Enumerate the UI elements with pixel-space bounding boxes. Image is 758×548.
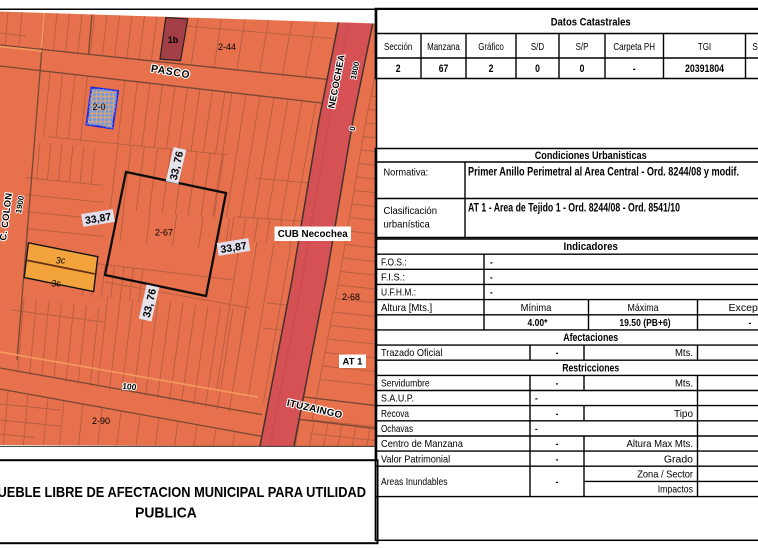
svg-text:-: - xyxy=(535,393,538,405)
svg-text:S/P: S/P xyxy=(576,42,589,53)
svg-text:Carpeta PH: Carpeta PH xyxy=(613,42,655,53)
svg-text:Gráfico: Gráfico xyxy=(478,42,504,53)
svg-text:2-67: 2-67 xyxy=(155,228,173,238)
svg-text:Areas Inundables: Areas Inundables xyxy=(381,476,448,488)
svg-text:Primer Anillo Perimetral al Ar: Primer Anillo Perimetral al Area Central… xyxy=(468,165,739,179)
svg-text:Valor Patrimonial: Valor Patrimonial xyxy=(381,453,450,465)
svg-text:Condiciones Urbanisticas: Condiciones Urbanisticas xyxy=(535,150,647,162)
svg-text:Afectaciones: Afectaciones xyxy=(563,332,618,344)
svg-text:2-44: 2-44 xyxy=(218,42,236,52)
svg-text:F.O.S.:: F.O.S.: xyxy=(381,256,407,268)
svg-text:20391804: 20391804 xyxy=(685,63,725,75)
svg-text:1b: 1b xyxy=(168,35,179,45)
svg-text:PUBLICA: PUBLICA xyxy=(135,505,197,522)
svg-text:Excepcional: Excepcional xyxy=(729,302,758,314)
svg-text:-: - xyxy=(556,476,559,488)
svg-text:Altura [Mts.]: Altura [Mts.] xyxy=(381,302,432,314)
svg-text:Mts.: Mts. xyxy=(675,378,693,390)
svg-text:Manzana: Manzana xyxy=(427,42,460,53)
svg-text:TGI: TGI xyxy=(698,42,711,53)
svg-text:Normativa:: Normativa: xyxy=(384,167,429,179)
svg-text:3c: 3c xyxy=(56,256,66,266)
svg-text:-: - xyxy=(749,317,752,329)
svg-text:-: - xyxy=(556,408,559,420)
svg-text:-: - xyxy=(556,438,559,450)
svg-text:Sup.: Sup. xyxy=(753,42,758,53)
svg-text:-: - xyxy=(490,272,493,284)
svg-text:100: 100 xyxy=(122,381,137,392)
svg-text:S.A.U.P.: S.A.U.P. xyxy=(381,393,414,405)
svg-text:67: 67 xyxy=(439,63,449,75)
svg-text:S/D: S/D xyxy=(531,42,544,53)
svg-text:INMUEBLE LIBRE DE AFECTACION M: INMUEBLE LIBRE DE AFECTACION MUNICIPAL P… xyxy=(0,484,366,501)
svg-text:-: - xyxy=(556,453,559,465)
svg-text:Zona / Sector: Zona / Sector xyxy=(637,468,693,480)
svg-text:-: - xyxy=(490,256,493,268)
svg-text:Impactos: Impactos xyxy=(658,484,693,496)
svg-text:urbanística: urbanística xyxy=(384,219,430,231)
svg-text:U.F.H.M.:: U.F.H.M.: xyxy=(381,287,416,299)
svg-text:Sección: Sección xyxy=(384,42,412,53)
svg-text:Clasificación: Clasificación xyxy=(384,205,438,217)
svg-text:F.I.S.:: F.I.S.: xyxy=(381,272,405,284)
svg-text:2: 2 xyxy=(396,63,401,75)
svg-text:4.00*: 4.00* xyxy=(528,317,549,329)
svg-text:Trazado Oficial: Trazado Oficial xyxy=(381,347,442,359)
svg-text:Tipo: Tipo xyxy=(674,408,693,420)
svg-text:AT 1 - Area de Tejido 1 - Ord.: AT 1 - Area de Tejido 1 - Ord. 8244/08 -… xyxy=(468,201,680,215)
svg-text:Recova: Recova xyxy=(381,408,409,420)
svg-text:0: 0 xyxy=(535,63,540,75)
svg-text:Servidumbre: Servidumbre xyxy=(381,378,430,390)
svg-text:-: - xyxy=(490,287,493,299)
svg-text:-: - xyxy=(556,347,559,359)
svg-text:2: 2 xyxy=(489,63,494,75)
svg-text:CUB Necochea: CUB Necochea xyxy=(278,229,348,240)
svg-text:Datos Catastrales: Datos Catastrales xyxy=(551,17,631,29)
svg-text:Restricciones: Restricciones xyxy=(562,362,619,374)
svg-text:3c: 3c xyxy=(51,279,61,289)
svg-text:-: - xyxy=(556,378,559,390)
svg-text:AT 1: AT 1 xyxy=(343,357,364,368)
svg-text:2-0: 2-0 xyxy=(92,102,105,112)
svg-text:Grado: Grado xyxy=(664,453,693,465)
svg-text:Mínima: Mínima xyxy=(521,302,552,314)
svg-text:2-68: 2-68 xyxy=(342,292,360,302)
svg-text:Mts.: Mts. xyxy=(675,347,693,359)
svg-text:-: - xyxy=(633,63,636,75)
svg-text:19.50 (PB+6): 19.50 (PB+6) xyxy=(619,317,670,329)
svg-text:-: - xyxy=(535,423,538,435)
svg-text:0: 0 xyxy=(580,63,585,75)
svg-text:Indicadores: Indicadores xyxy=(564,241,618,253)
svg-text:Ochavas: Ochavas xyxy=(381,423,413,435)
svg-text:Centro de Manzana: Centro de Manzana xyxy=(381,438,463,450)
svg-text:2-90: 2-90 xyxy=(92,416,110,426)
svg-text:Máxima: Máxima xyxy=(628,302,659,314)
svg-text:Altura Max Mts.: Altura Max Mts. xyxy=(627,438,694,450)
